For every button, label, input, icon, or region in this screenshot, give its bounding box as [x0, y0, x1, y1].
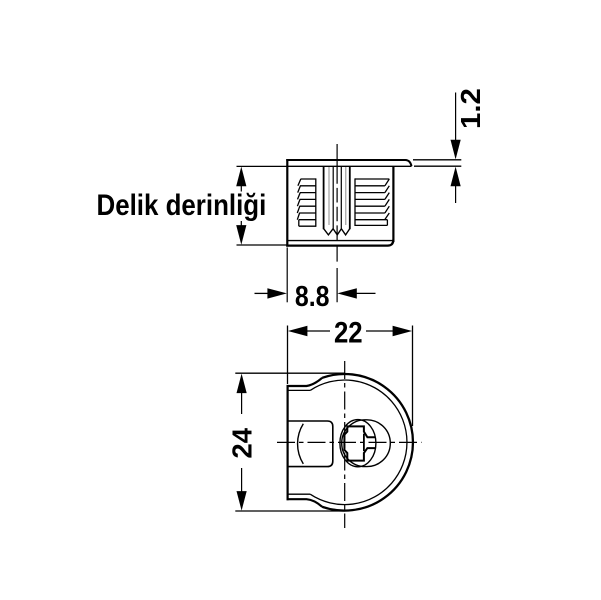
svg-text:24: 24 [226, 427, 257, 458]
svg-text:Delik derinliği: Delik derinliği [97, 188, 267, 221]
svg-text:1.2: 1.2 [455, 88, 486, 129]
svg-text:8.8: 8.8 [295, 280, 330, 312]
svg-text:22: 22 [334, 316, 363, 349]
